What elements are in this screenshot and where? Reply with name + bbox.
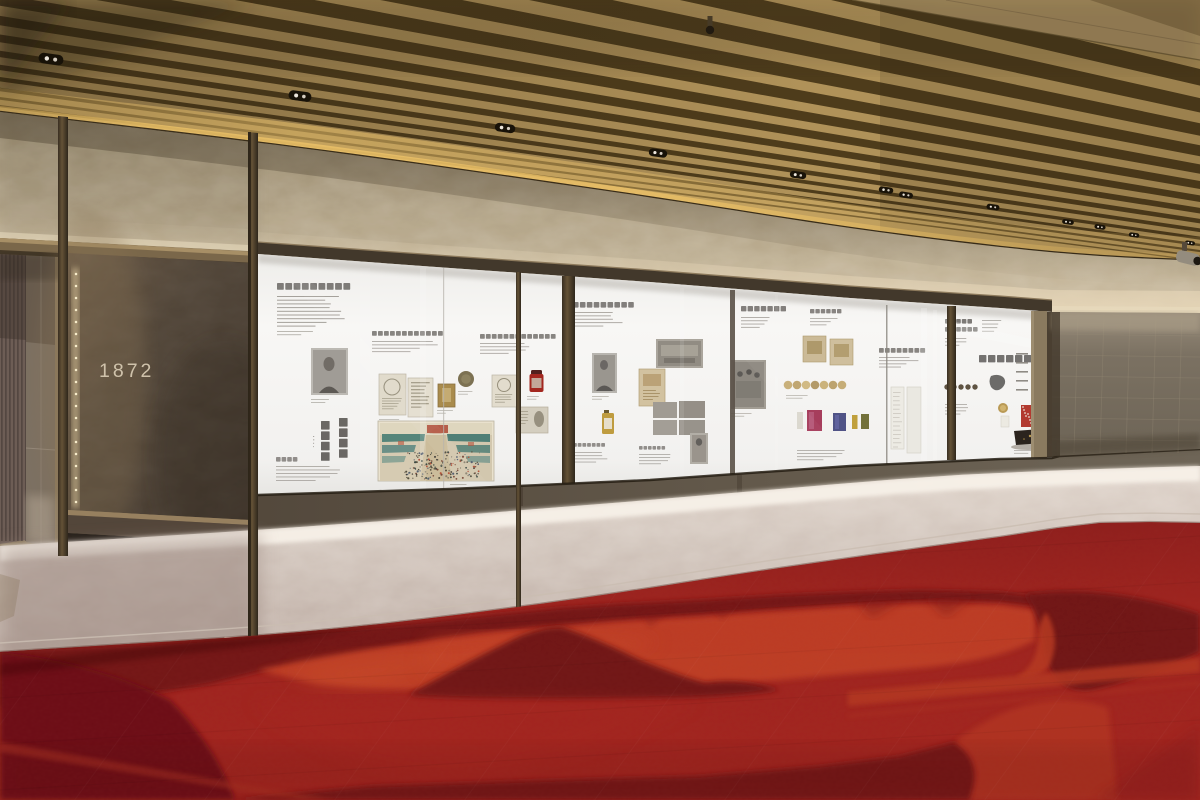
svg-text:1872: 1872 [99, 360, 154, 382]
